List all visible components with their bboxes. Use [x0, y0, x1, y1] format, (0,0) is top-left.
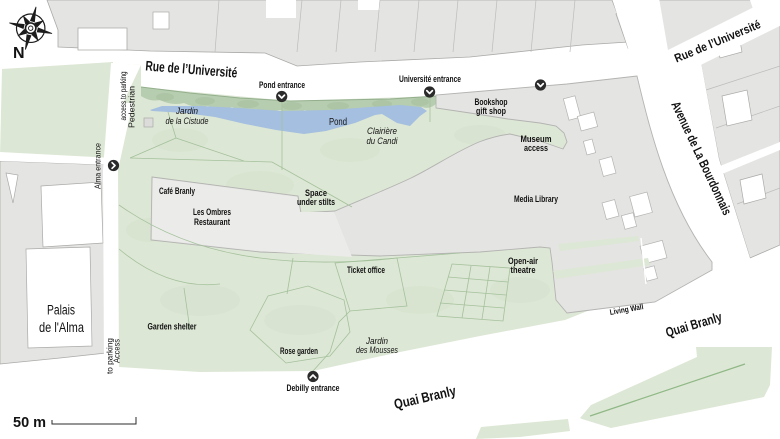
svg-text:under stilts: under stilts: [297, 197, 335, 207]
svg-text:des Mousses: des Mousses: [356, 345, 398, 355]
svg-text:de la Cistude: de la Cistude: [166, 116, 209, 126]
svg-text:access: access: [524, 143, 548, 153]
svg-text:Université entrance: Université entrance: [399, 74, 461, 84]
svg-text:Pond: Pond: [329, 117, 347, 128]
svg-text:Media Library: Media Library: [514, 194, 559, 205]
svg-text:Pond entrance: Pond entrance: [259, 80, 305, 90]
svg-text:access to parking: access to parking: [119, 72, 128, 121]
svg-text:du Candi: du Candi: [367, 136, 399, 146]
svg-text:Pedestrian: Pedestrian: [128, 86, 137, 128]
svg-text:Restaurant: Restaurant: [194, 217, 230, 227]
svg-text:N: N: [13, 45, 25, 62]
svg-text:de l'Alma: de l'Alma: [39, 320, 84, 335]
svg-text:Café Branly: Café Branly: [159, 186, 195, 196]
svg-text:Palais: Palais: [47, 303, 75, 318]
svg-text:Rose garden: Rose garden: [280, 346, 318, 356]
svg-text:gift shop: gift shop: [476, 106, 506, 116]
svg-text:theatre: theatre: [511, 265, 536, 275]
svg-text:Jardin: Jardin: [175, 106, 198, 116]
svg-text:to parking: to parking: [106, 338, 115, 374]
svg-text:Debilly entrance: Debilly entrance: [287, 383, 340, 393]
svg-text:Les Ombres: Les Ombres: [193, 207, 231, 217]
svg-text:Clairière: Clairière: [367, 126, 397, 136]
svg-text:50 m: 50 m: [13, 415, 46, 431]
svg-text:Ticket office: Ticket office: [347, 265, 385, 275]
svg-text:Alma entrance: Alma entrance: [93, 143, 103, 189]
svg-text:Garden shelter: Garden shelter: [148, 322, 197, 332]
